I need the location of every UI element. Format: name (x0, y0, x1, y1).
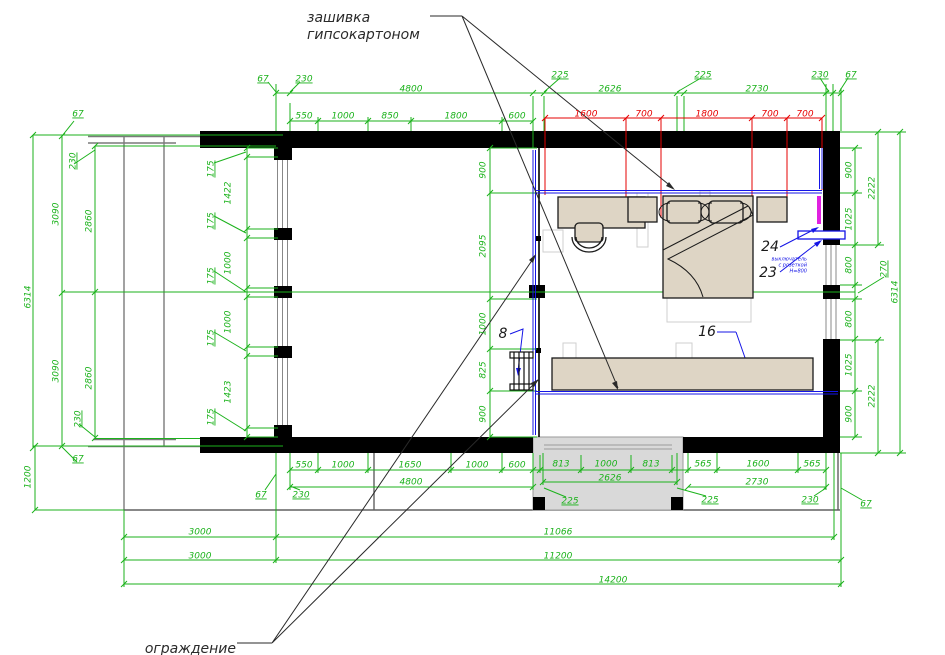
bottom-wall-left (200, 437, 533, 453)
dimension-label: 67 (72, 455, 84, 465)
dimension-label: 2095 (479, 234, 489, 257)
dimension-label: 175 (207, 267, 217, 284)
dimension-label: 825 (479, 361, 489, 378)
dimension-label: 2730 (746, 478, 769, 488)
dimension-label-red: 700 (761, 110, 778, 120)
dimension-label: 175 (207, 212, 217, 229)
dimension-label: 230 (292, 491, 309, 501)
right-wall-segment (823, 339, 840, 437)
dimension-label: 67 (72, 110, 84, 120)
dimension-label: 230 (811, 71, 828, 81)
item-number-label: 23 (759, 265, 777, 281)
dimension-label: 850 (381, 112, 398, 122)
dimension-label: 67 (845, 71, 857, 81)
railing-post (536, 236, 541, 241)
dimension-label: 900 (479, 405, 489, 422)
dimension-label: 2626 (599, 474, 622, 484)
item-number-label: 24 (761, 239, 779, 255)
dimension-label: 14200 (599, 576, 628, 586)
dimension-label: 565 (694, 460, 711, 470)
dimension-label: 67 (255, 491, 267, 501)
dimension-label: 230 (295, 75, 312, 85)
annotation-label: Н=800 (790, 269, 808, 275)
dimension-label: 1000 (332, 461, 355, 471)
nightstand (628, 197, 657, 222)
balcony-post (533, 497, 545, 510)
pillow (709, 201, 743, 223)
dimension-label: 1423 (224, 380, 234, 403)
column (274, 148, 292, 160)
dimension-label: 1025 (845, 353, 855, 376)
dimension-label: 175 (207, 408, 217, 425)
dimension-label: 175 (207, 160, 217, 177)
dimension-label: 1000 (332, 112, 355, 122)
dimension-label: 270 (880, 260, 890, 277)
dimension-label: 230 (69, 152, 79, 169)
dimension-label: 230 (801, 496, 818, 506)
dimension-label: 1000 (224, 310, 234, 333)
dimension-label: 4800 (400, 85, 423, 95)
dimension-label: 565 (803, 460, 820, 470)
top-wall (200, 131, 840, 148)
dimension-label: 6314 (891, 280, 901, 303)
dimension-label: 11200 (544, 552, 573, 562)
dimension-label: 6314 (24, 285, 34, 308)
dimension-label-red: 1600 (575, 110, 598, 120)
terrace-railing-lines (88, 136, 840, 510)
dimension-label: 900 (479, 161, 489, 178)
floor-plan-page: 6723048005501000850180060022526262252730… (0, 0, 945, 655)
annotation-label: гипсокартоном (307, 27, 420, 43)
dimension-label: 2222 (868, 176, 878, 199)
labels-layer: 6723048005501000850180060022526262252730… (24, 10, 901, 655)
dimension-label: 1650 (399, 461, 422, 471)
wall-heater-strip (817, 196, 821, 224)
dimension-label: 813 (642, 460, 659, 470)
pillow (667, 201, 701, 223)
annotation-label: зашивка (307, 10, 370, 26)
dimension-label: 2860 (85, 366, 95, 389)
dimension-label: 1600 (747, 460, 770, 470)
dimension-label: 225 (561, 497, 578, 507)
dimension-label: 813 (552, 460, 569, 470)
dimension-label: 11066 (544, 528, 573, 538)
dimension-label: 225 (701, 496, 718, 506)
dimension-label: 1200 (24, 465, 34, 488)
dimension-label: 225 (551, 71, 568, 81)
dimension-label: 1800 (445, 112, 468, 122)
dimension-label-red: 700 (635, 110, 652, 120)
dimension-label: 3090 (52, 359, 62, 382)
furniture (552, 196, 813, 390)
dimension-label-red: 700 (796, 110, 813, 120)
dimension-label: 600 (508, 461, 525, 471)
dimension-label: 3090 (52, 202, 62, 225)
annotation-label: ограждение (145, 641, 236, 655)
radiator (510, 352, 533, 390)
dimension-label: 67 (257, 75, 269, 85)
nightstand (757, 197, 787, 222)
dimension-label: 4800 (400, 478, 423, 488)
chair-seat (575, 223, 603, 242)
dimension-label: 175 (207, 329, 217, 346)
dimension-label: 550 (295, 112, 312, 122)
dimension-label: 1000 (595, 460, 618, 470)
dimension-label: 2860 (85, 209, 95, 232)
wardrobe (552, 358, 813, 390)
balcony-post (671, 497, 683, 510)
column (274, 425, 292, 437)
dimension-label: 3000 (189, 552, 212, 562)
dimension-label: 1025 (845, 207, 855, 230)
dimension-label: 900 (845, 405, 855, 422)
dimension-label-red: 1800 (696, 110, 719, 120)
dimension-label: 230 (74, 410, 84, 427)
dimension-label: 2222 (868, 384, 878, 407)
dimension-label: 2626 (599, 85, 622, 95)
dimension-label: 3000 (189, 528, 212, 538)
dimension-label: 600 (508, 112, 525, 122)
dimension-label: 550 (295, 461, 312, 471)
item-number-label: 16 (698, 324, 716, 340)
dimension-label: 67 (860, 500, 872, 510)
item-number-label: 8 (499, 326, 508, 342)
dimension-label: 1000 (479, 312, 489, 335)
dimension-label: 2730 (746, 85, 769, 95)
dimension-label: 800 (845, 256, 855, 273)
bottom-wall-right (683, 437, 840, 453)
wall-shelf (798, 231, 845, 239)
floor-plan-drawing: 6723048005501000850180060022526262252730… (0, 0, 945, 655)
dimension-label: 1000 (224, 251, 234, 274)
dimension-label: 800 (845, 310, 855, 327)
dimension-label: 1422 (224, 181, 234, 204)
dimension-label: 900 (845, 161, 855, 178)
annotation-leader-lines (237, 16, 673, 643)
dimension-label: 1000 (466, 461, 489, 471)
dimension-label: 225 (694, 71, 711, 81)
